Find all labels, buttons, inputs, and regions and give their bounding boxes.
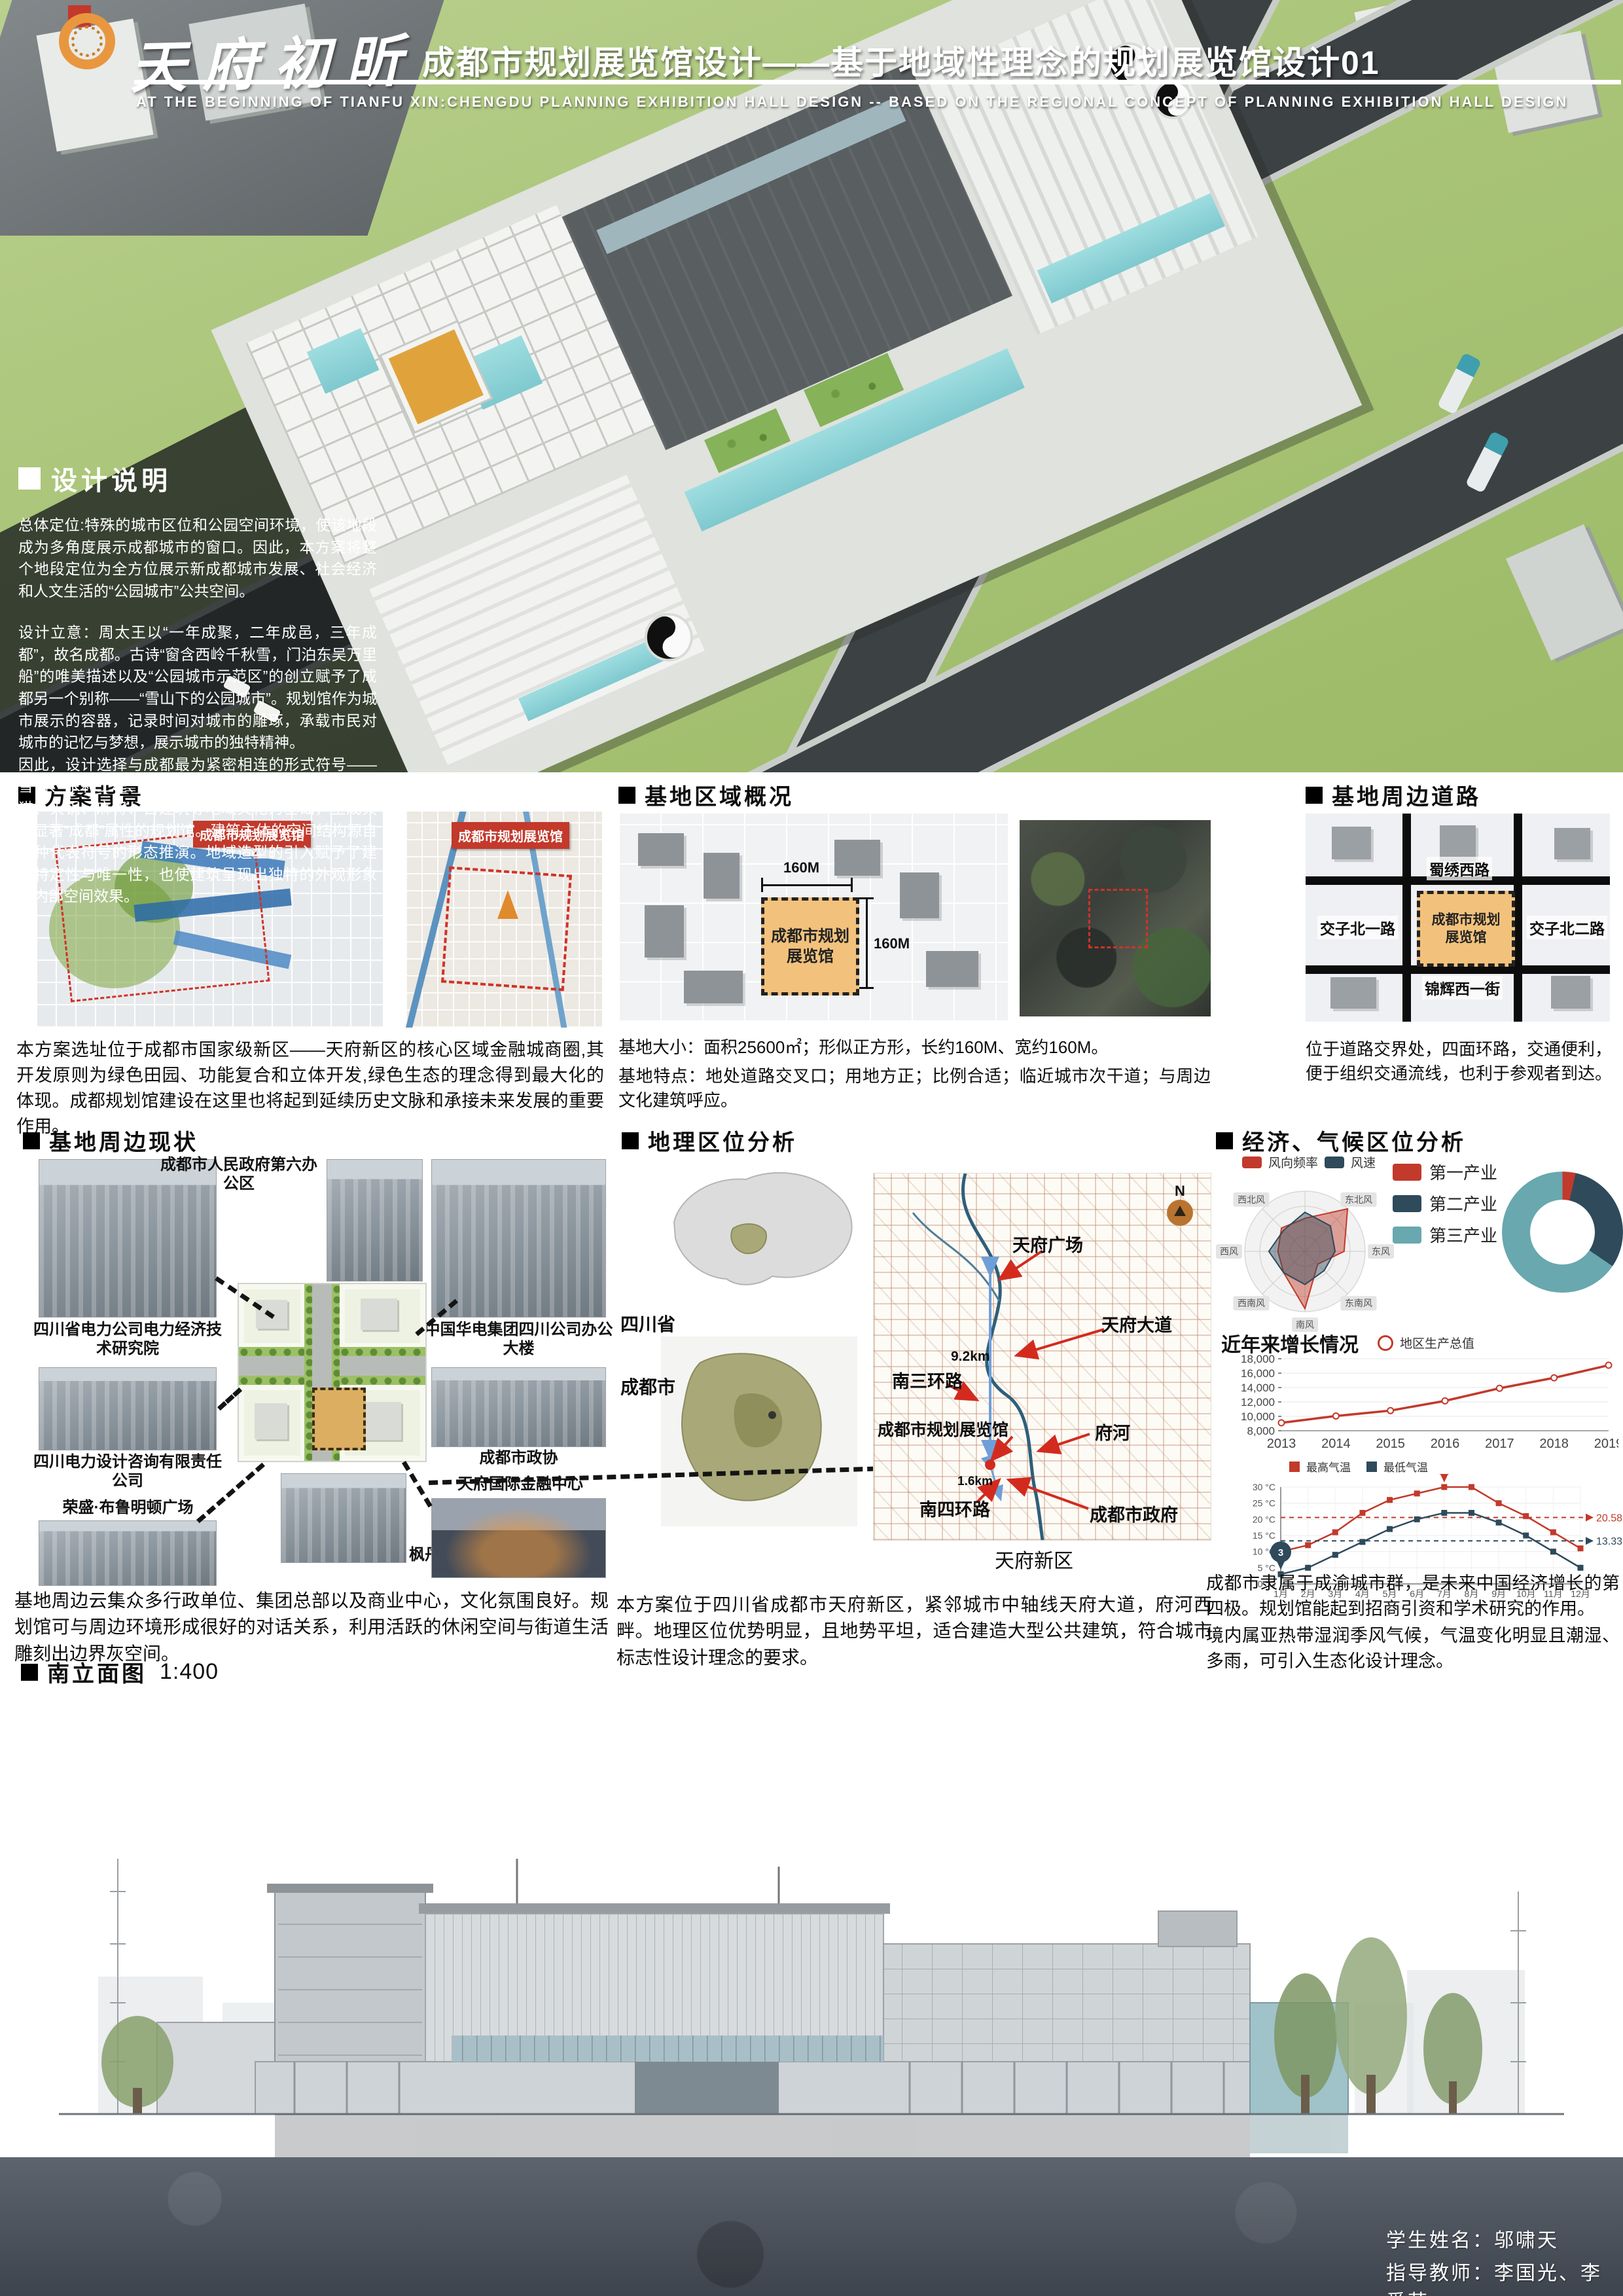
svg-text:25 °C: 25 °C bbox=[1253, 1498, 1275, 1509]
heading-square-icon bbox=[18, 467, 41, 490]
photo-label: 荣盛·布鲁明顿广场 bbox=[31, 1499, 224, 1518]
industry-donut-chart bbox=[1502, 1172, 1623, 1293]
map-overlay bbox=[874, 1174, 1211, 1540]
svg-text:14,000: 14,000 bbox=[1241, 1382, 1275, 1394]
building-footprint bbox=[900, 872, 939, 918]
design-notes-heading: 设计说明 bbox=[51, 459, 171, 497]
svg-text:20 °C: 20 °C bbox=[1253, 1514, 1275, 1524]
section-econ-climate: 经济、气候区位分析 bbox=[1216, 1124, 1466, 1157]
page-title: 成都市规划展览馆设计——基于地域性理念的规划展览馆设计01 bbox=[422, 37, 1380, 84]
road-name: 交子北一路 bbox=[1317, 916, 1398, 939]
district-label: 天府新区 bbox=[995, 1545, 1073, 1573]
credit-student: 学生姓名：邬啸天 bbox=[1386, 2224, 1559, 2253]
roads-map: 成都市规划 展览馆 蜀绣西路 交子北一路 交子北二路 锦辉西一街 bbox=[1306, 814, 1610, 1022]
svg-text:20.58: 20.58 bbox=[1596, 1513, 1622, 1524]
building-footprint bbox=[704, 853, 740, 899]
svg-text:30 °C: 30 °C bbox=[1253, 1482, 1275, 1492]
photo-label: 四川电力设计咨询有限责任公司 bbox=[29, 1453, 226, 1491]
legend-label: 最低气温 bbox=[1383, 1458, 1428, 1475]
photo-label: 中国华电集团四川公司办公大楼 bbox=[422, 1321, 615, 1359]
heading-square-icon bbox=[1306, 787, 1323, 804]
svg-text:12,000: 12,000 bbox=[1241, 1396, 1275, 1408]
background-map-2: 成都市规划展览馆 bbox=[406, 812, 602, 1028]
map-label: 成都市规划展览馆 bbox=[878, 1417, 1008, 1441]
road-vertical bbox=[1402, 814, 1411, 1022]
section-site-roads: 基地周边道路 bbox=[1306, 779, 1481, 811]
green-verge bbox=[304, 1284, 312, 1461]
legend-chip bbox=[1393, 1227, 1421, 1244]
site-square: 成都市规划 展览馆 bbox=[1417, 891, 1515, 967]
heading-square-icon bbox=[1216, 1132, 1233, 1149]
core-area-boundary bbox=[441, 867, 572, 992]
svg-text:3: 3 bbox=[1278, 1547, 1283, 1558]
road-name: 蜀绣西路 bbox=[1427, 857, 1492, 880]
temp-legend: 最高气温 最低气温 bbox=[1289, 1458, 1428, 1475]
section-surroundings: 基地周边现状 bbox=[23, 1124, 198, 1157]
site-photo bbox=[432, 1368, 605, 1446]
logo-text: 天府初昕 bbox=[128, 14, 418, 103]
dimension-tick bbox=[859, 897, 874, 899]
connector-line bbox=[402, 1461, 433, 1507]
section-heading: 经济、气候区位分析 bbox=[1242, 1124, 1466, 1157]
site-square: 成都市规划 展览馆 bbox=[761, 897, 859, 996]
site-label: 展览馆 bbox=[1446, 929, 1487, 946]
building-footprint bbox=[834, 840, 880, 876]
site-roads-caption: 位于道路交界处，四面环路，交通便利，便于组织交通流线，也利于参观者到达。 bbox=[1306, 1037, 1612, 1086]
legend-label: 第二产业 bbox=[1429, 1191, 1497, 1215]
econ-caption-1: 成都市隶属于成渝城市群，是未来中国经济增长的第四极。规划馆能起到招商引资和学术研… bbox=[1206, 1571, 1620, 1622]
site-photo bbox=[281, 1474, 406, 1562]
legend-dot-icon bbox=[1378, 1335, 1393, 1351]
svg-text:东北风: 东北风 bbox=[1345, 1194, 1372, 1205]
dimension-tick bbox=[761, 878, 763, 892]
section-geo-analysis: 地理区位分析 bbox=[622, 1124, 797, 1157]
surroundings-caption: 基地周边云集众多行政单位、集团总部以及商业中心，文化氛围良好。规划馆可与周边环境… bbox=[14, 1588, 609, 1667]
section-heading: 基地周边现状 bbox=[49, 1124, 198, 1157]
legend-label: 地区生产总值 bbox=[1400, 1334, 1474, 1352]
legend-chip-red bbox=[1242, 1157, 1262, 1168]
site-photo bbox=[39, 1368, 216, 1450]
wind-legend: 风向频率 风速 bbox=[1242, 1153, 1376, 1171]
legend-square-icon bbox=[1289, 1462, 1300, 1472]
logo-icon bbox=[59, 13, 115, 69]
dimension-tick bbox=[859, 987, 874, 989]
plan-lot bbox=[244, 1390, 300, 1456]
section-elevation: 南立面图 1:400 bbox=[21, 1656, 219, 1688]
legend-label: 第一产业 bbox=[1429, 1160, 1497, 1184]
section-heading: 地理区位分析 bbox=[648, 1124, 797, 1157]
industry-legend-1: 第一产业 bbox=[1393, 1160, 1497, 1184]
photo-label: 成都市政协 bbox=[432, 1449, 605, 1468]
distance-label: 9.2km bbox=[951, 1349, 990, 1365]
svg-text:2019: 2019 bbox=[1594, 1437, 1618, 1451]
dimension-label: 160M bbox=[783, 859, 819, 876]
building-footprint bbox=[926, 951, 978, 987]
site-label: 展览馆 bbox=[787, 946, 834, 967]
legend-chip bbox=[1393, 1195, 1421, 1212]
building-footprint bbox=[645, 905, 684, 958]
map-label: 成都市政府 bbox=[1090, 1501, 1178, 1526]
design-notes-panel: 设计说明 总体定位:特殊的城市区位和公园空间环境，使该地段成为多角度展示成都城市… bbox=[18, 459, 377, 908]
building-footprint bbox=[638, 833, 684, 866]
svg-text:西风: 西风 bbox=[1220, 1246, 1238, 1257]
title-divider bbox=[134, 80, 1621, 84]
svg-text:东风: 东风 bbox=[1372, 1246, 1390, 1257]
svg-text:10,000: 10,000 bbox=[1241, 1410, 1275, 1423]
industry-legend-2: 第二产业 bbox=[1393, 1191, 1497, 1215]
site-size-caption: 基地大小：面积25600㎡；形似正方形，长约160M、宽约160M。 bbox=[618, 1035, 1211, 1060]
bus bbox=[1437, 352, 1482, 415]
compass: N bbox=[1167, 1183, 1193, 1226]
svg-text:2015: 2015 bbox=[1376, 1437, 1405, 1451]
render-building bbox=[1506, 524, 1623, 660]
econ-caption-2: 境内属亚热带湿润季风气候，气温变化明显且潮湿、多雨，可引入生态化设计理念。 bbox=[1206, 1623, 1620, 1674]
svg-text:13.33: 13.33 bbox=[1596, 1536, 1622, 1547]
building-footprint bbox=[1554, 828, 1590, 859]
svg-text:2016: 2016 bbox=[1431, 1437, 1460, 1451]
svg-text:15 °C: 15 °C bbox=[1253, 1530, 1275, 1541]
legend-chip-navy bbox=[1325, 1157, 1344, 1168]
city-label: 成都市 bbox=[620, 1373, 675, 1399]
site-photo bbox=[432, 1160, 605, 1317]
design-notes-paragraph: 总体定位:特殊的城市区位和公园空间环境，使该地段成为多角度展示成都城市的窗口。因… bbox=[18, 514, 377, 602]
compass-n-label: N bbox=[1167, 1183, 1193, 1200]
road-name: 交子北二路 bbox=[1527, 916, 1607, 939]
building-footprint bbox=[1332, 827, 1371, 859]
dimension-label: 160M bbox=[874, 935, 910, 952]
svg-text:16,000: 16,000 bbox=[1241, 1367, 1275, 1380]
sichuan-map bbox=[661, 1336, 857, 1526]
svg-text:2014: 2014 bbox=[1321, 1437, 1350, 1451]
legend-square-icon bbox=[1366, 1462, 1377, 1472]
map-badge: 成都市规划展览馆 bbox=[452, 822, 569, 849]
building-footprint bbox=[1440, 825, 1476, 861]
water-texture-band bbox=[0, 2157, 1623, 2296]
satellite-image bbox=[1020, 820, 1211, 1016]
geo-caption: 本方案位于四川省成都市天府新区，紧邻城市中轴线天府大道，府河西畔。地理区位优势明… bbox=[616, 1592, 1212, 1671]
map-label: 南三环路 bbox=[892, 1367, 963, 1393]
svg-text:2013: 2013 bbox=[1267, 1437, 1296, 1451]
svg-text:2017: 2017 bbox=[1485, 1437, 1514, 1451]
plan-lot bbox=[345, 1289, 420, 1343]
site-photo bbox=[39, 1521, 216, 1585]
building-footprint bbox=[1551, 976, 1590, 1009]
province-label: 四川省 bbox=[620, 1310, 675, 1336]
svg-text:西南风: 西南风 bbox=[1238, 1298, 1265, 1308]
gdp-line-chart: 8,00010,00012,00014,00016,00018,00020132… bbox=[1216, 1354, 1618, 1452]
site-label: 成都市规划 bbox=[771, 926, 849, 946]
heading-square-icon bbox=[21, 1664, 38, 1681]
photo-label: 成都市人民政府第六办公区 bbox=[160, 1156, 317, 1194]
plan-site-building bbox=[312, 1388, 366, 1450]
map-label: 南四环路 bbox=[919, 1496, 990, 1521]
industry-legend-3: 第三产业 bbox=[1393, 1223, 1497, 1247]
building-footprint bbox=[684, 971, 743, 1003]
heading-square-icon bbox=[23, 1132, 40, 1149]
south-elevation-drawing bbox=[59, 1695, 1564, 2193]
site-feature-caption: 基地特点：地处道路交叉口；用地方正；比例合适；临近城市次干道；与周边文化建筑呼应… bbox=[618, 1064, 1211, 1113]
gdp-legend: 地区生产总值 bbox=[1378, 1334, 1474, 1352]
site-photo bbox=[432, 1499, 605, 1577]
dimension-line bbox=[761, 884, 853, 886]
heading-square-icon bbox=[622, 1132, 639, 1149]
up-arrow bbox=[497, 890, 518, 919]
photo-label: 四川省电力公司电力经济技术研究院 bbox=[29, 1321, 226, 1359]
svg-text:西北风: 西北风 bbox=[1238, 1194, 1265, 1205]
svg-text:18,000: 18,000 bbox=[1241, 1354, 1275, 1365]
distance-label: 1.6km bbox=[957, 1475, 993, 1489]
design-notes-paragraph: 设计立意：周太王以“一年成聚，二年成邑，三年成都”，故名成都。古诗“窗含西岭千秋… bbox=[18, 622, 377, 753]
legend-label: 风速 bbox=[1351, 1153, 1376, 1171]
site-label: 成都市规划 bbox=[1432, 911, 1501, 929]
chengdu-city-map: 天府广场 天府大道 南三环路 成都市规划展览馆 府河 南四环路 成都市政府 9.… bbox=[874, 1174, 1211, 1540]
heading-square-icon bbox=[618, 787, 635, 804]
legend-label: 风向频率 bbox=[1268, 1153, 1318, 1171]
section-site-overview: 基地区域概况 bbox=[618, 779, 794, 811]
presentation-board: 天府初昕 成都市规划展览馆设计——基于地域性理念的规划展览馆设计01 AT TH… bbox=[0, 0, 1623, 2296]
map-label: 天府广场 bbox=[1012, 1231, 1083, 1257]
subtitle-english: AT THE BEGINNING OF TIANFU XIN:CHENGDU P… bbox=[136, 94, 1568, 111]
road-name: 锦辉西一街 bbox=[1422, 976, 1503, 999]
design-notes-paragraph: 因此，设计选择与成都最为紧密相连的形式符号——雪山、水利工程、太极图、太阳神鸟、… bbox=[18, 754, 377, 908]
section-heading: 南立面图 bbox=[47, 1656, 147, 1688]
site-photo bbox=[327, 1160, 422, 1281]
wind-rose-chart: 东北风东风东南风南风西南风西风西北风 bbox=[1212, 1172, 1399, 1338]
svg-text:2018: 2018 bbox=[1539, 1437, 1569, 1451]
credit-advisors: 指导教师：李国光、李爱芳 bbox=[1386, 2257, 1623, 2296]
building-footprint bbox=[1330, 977, 1376, 1009]
legend-label: 最高气温 bbox=[1306, 1458, 1351, 1475]
map-label: 府河 bbox=[1095, 1419, 1130, 1444]
compass-icon bbox=[1167, 1200, 1193, 1226]
section-heading: 基地区域概况 bbox=[645, 779, 794, 811]
dimension-line bbox=[866, 897, 868, 989]
site-boundary bbox=[1088, 889, 1148, 948]
legend-chip bbox=[1393, 1164, 1421, 1181]
svg-text:8,000: 8,000 bbox=[1247, 1425, 1275, 1437]
legend-label: 第三产业 bbox=[1429, 1223, 1497, 1247]
dimension-tick bbox=[851, 878, 853, 892]
china-map bbox=[661, 1160, 864, 1294]
section-heading: 基地周边道路 bbox=[1332, 779, 1481, 811]
site-plan-diagram: 成都市规划 展览馆 160M 160M bbox=[618, 814, 1008, 1022]
map-label: 天府大道 bbox=[1101, 1311, 1172, 1336]
elevation-scale: 1:400 bbox=[160, 1659, 219, 1685]
svg-text:东南风: 东南风 bbox=[1345, 1298, 1372, 1308]
